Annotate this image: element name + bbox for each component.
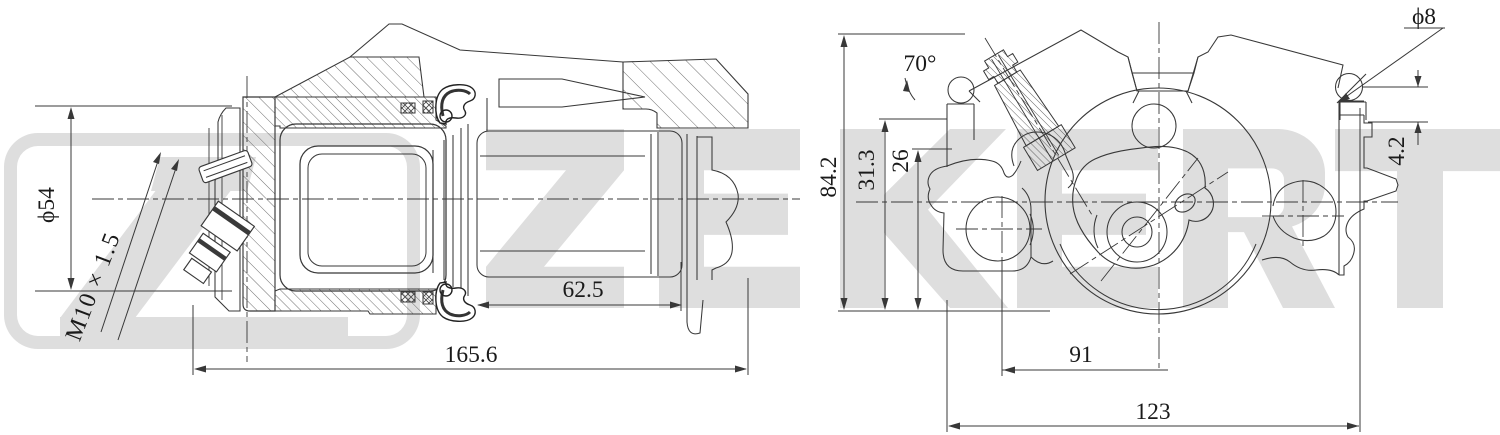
svg-text:91: 91 (1069, 342, 1093, 368)
svg-text:62.5: 62.5 (562, 277, 603, 303)
svg-text:70°: 70° (904, 51, 937, 77)
svg-text:ϕ54: ϕ54 (34, 187, 60, 223)
svg-text:84.2: 84.2 (816, 156, 842, 197)
svg-text:31.3: 31.3 (854, 149, 880, 190)
svg-text:4.2: 4.2 (1384, 136, 1410, 165)
svg-text:ϕ8: ϕ8 (1412, 4, 1436, 30)
svg-text:123: 123 (1135, 399, 1170, 425)
svg-text:165.6: 165.6 (445, 342, 498, 368)
svg-text:26: 26 (888, 149, 914, 173)
